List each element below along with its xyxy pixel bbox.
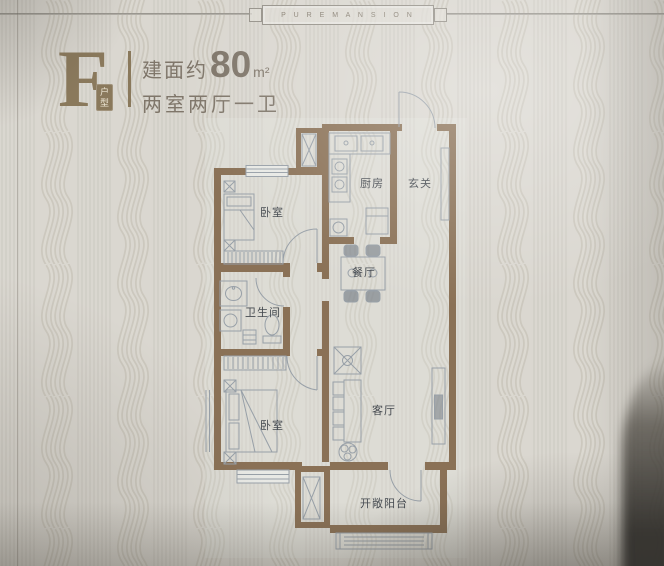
banner-line-right [446, 13, 664, 15]
area-unit: m² [253, 64, 269, 80]
room-label-kitchen: 厨房 [360, 175, 384, 191]
room-label-living-room: 客厅 [372, 402, 396, 418]
unit-type-badge: 户 型 [96, 84, 113, 111]
brand-text: P U R E M A N S I O N [281, 12, 415, 19]
room-label-balcony: 开敞阳台 [360, 495, 408, 511]
room-label-foyer: 玄关 [408, 175, 432, 191]
room-label-bedroom-2: 卧室 [260, 417, 284, 433]
area-value: 80 [210, 46, 251, 83]
banner-ornament-right [434, 8, 447, 22]
brand-plaque: P U R E M A N S I O N [262, 5, 434, 25]
header-text: 建面约 80 m² 两室两厅一卫 [142, 46, 280, 117]
badge-char-1: 户 [96, 87, 113, 98]
floorplan-poster-photo: P U R E M A N S I O N F 户 型 建面约 80 m² 两室… [0, 0, 664, 566]
area-prefix: 建面约 [142, 54, 208, 83]
badge-char-2: 型 [96, 98, 113, 109]
header-divider [128, 51, 131, 107]
banner-ornament-left [249, 8, 262, 22]
area-line: 建面约 80 m² [142, 46, 280, 83]
room-label-dining: 餐厅 [352, 264, 376, 280]
layout-description: 两室两厅一卫 [142, 88, 280, 117]
poster-board-edge [17, 0, 18, 566]
room-label-bedroom-1: 卧室 [260, 204, 284, 220]
banner-line-left [0, 13, 252, 15]
room-label-bathroom: 卫生间 [245, 304, 281, 320]
